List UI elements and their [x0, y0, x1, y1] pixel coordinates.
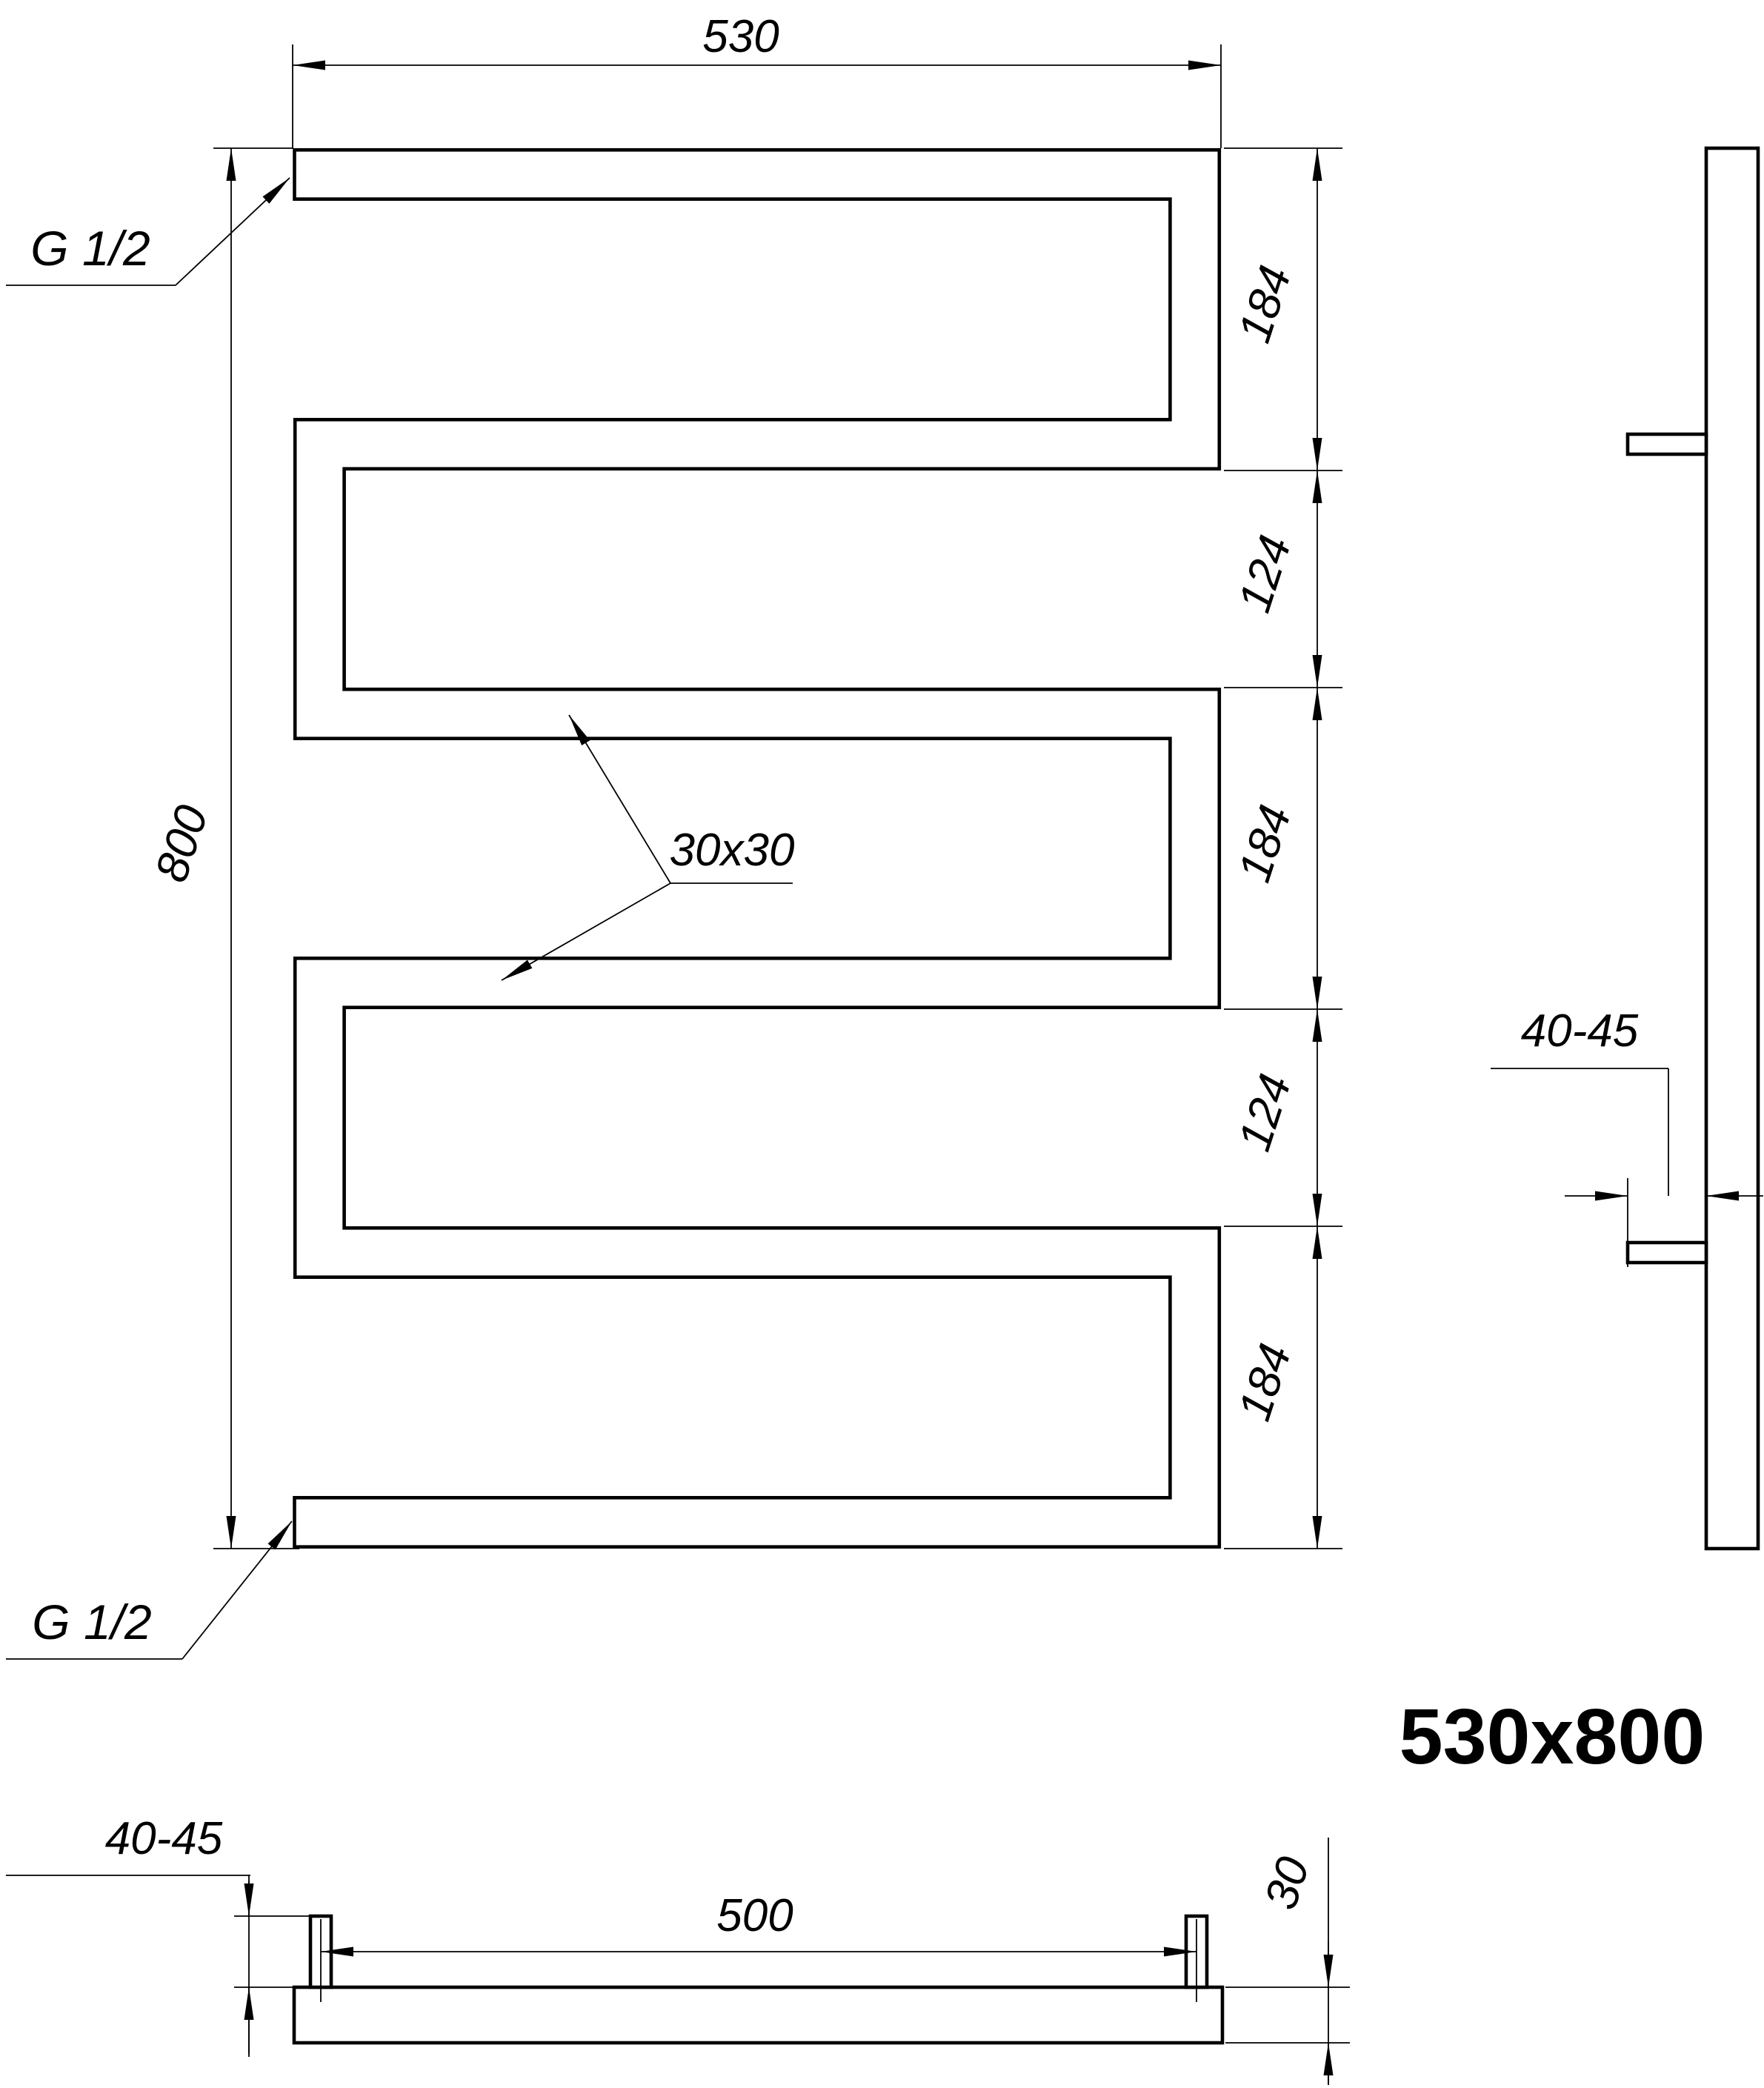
- inlet-top-label: G 1/2: [30, 221, 150, 276]
- dim-segment-text-1: 184: [1229, 260, 1302, 349]
- bracket-spacing-text: 500: [716, 1890, 793, 1941]
- dim-right-segments: 184 124 184 124 184: [1224, 148, 1342, 1549]
- bottom-view: 40-45 500 30: [6, 1813, 1350, 2085]
- side-view: 40-45: [1491, 148, 1763, 1549]
- bottom-tube-profile: [294, 1987, 1222, 2043]
- dim-tube-depth: 30: [1225, 1838, 1350, 2085]
- dim-segment-text-5: 184: [1229, 1338, 1302, 1427]
- leader-arrow-line: [182, 1521, 292, 1659]
- side-tube-profile: [1706, 148, 1758, 1549]
- leader-inlet-top: G 1/2: [6, 178, 290, 285]
- dim-segment-text-4: 124: [1229, 1068, 1302, 1157]
- leader-tube-section: 30x30: [502, 715, 794, 980]
- dim-segment-text-3: 184: [1229, 799, 1302, 888]
- leader-arrow-line: [176, 178, 290, 285]
- dim-width-text: 530: [702, 11, 779, 62]
- leader-inlet-bottom: G 1/2: [6, 1521, 292, 1659]
- dim-height: 800: [146, 148, 299, 1549]
- tube-section-label: 30x30: [670, 825, 795, 876]
- wall-bracket-upper: [1628, 434, 1706, 454]
- wall-bracket-lower: [1628, 1243, 1706, 1263]
- model-size-title: 530x800: [1399, 1693, 1705, 1781]
- leader-arrow-line: [569, 715, 670, 883]
- side-wall-offset-text: 40-45: [1521, 1005, 1639, 1057]
- drawing-sheet: 530 800 184 124 184 124 184 G 1/2 G 1/2: [0, 0, 1764, 2088]
- dim-segment-text-2: 124: [1229, 530, 1302, 619]
- inlet-bottom-label: G 1/2: [32, 1595, 151, 1649]
- dim-height-text: 800: [146, 799, 219, 888]
- dim-bracket-spacing: 500: [321, 1890, 1196, 1952]
- tube-depth-text: 30: [1255, 1851, 1319, 1915]
- dim-bottom-wall-offset: 40-45: [6, 1813, 319, 2057]
- dim-width: 530: [293, 11, 1221, 148]
- towel-rail-technical-drawing: 530 800 184 124 184 124 184 G 1/2 G 1/2: [0, 0, 1764, 2088]
- bottom-wall-offset-text: 40-45: [105, 1813, 223, 1864]
